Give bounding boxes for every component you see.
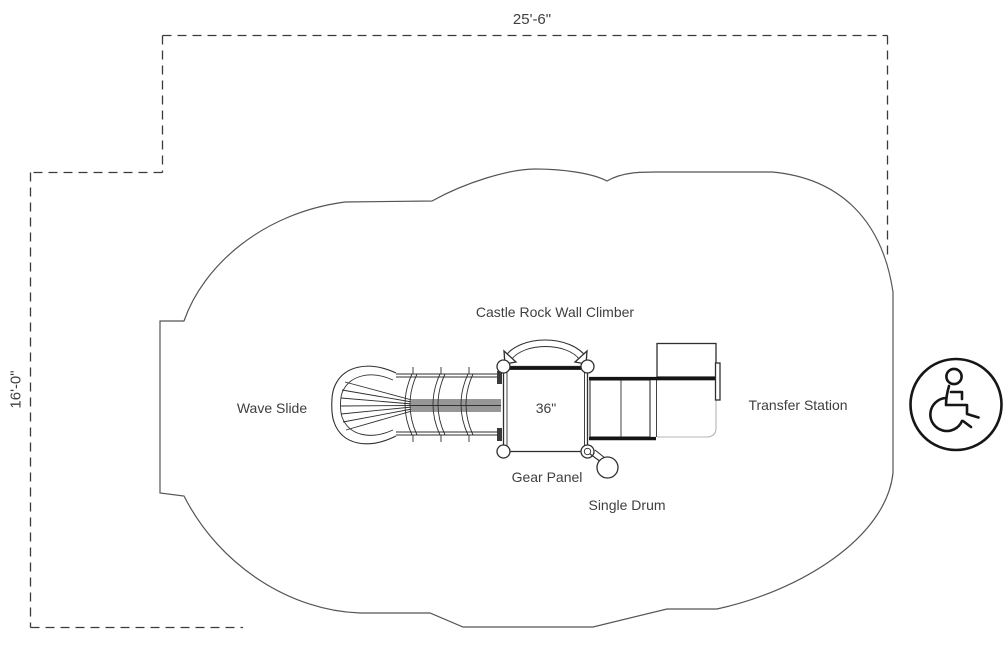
single-drum-label: Single Drum [557,497,697,514]
transfer-upper-box [657,344,716,378]
wheelchair-accessible-icon [911,359,1002,450]
plan-linework [0,0,1008,662]
height-dimension-label: 16'-0" [8,360,25,420]
transfer-handhold [716,363,721,400]
deck-size-label: 36" [516,400,576,417]
climber-label: Castle Rock Wall Climber [455,304,655,321]
transfer-station-label: Transfer Station [718,397,878,414]
gear-panel-label: Gear Panel [487,469,607,486]
wave-slide-label: Wave Slide [212,400,332,417]
width-dimension-label: 25'-6" [492,11,572,28]
slide-attach-cap-bottom [497,428,502,441]
playground-plan-drawing: 25'-6" 16'-0" Castle Rock Wall Climber W… [0,0,1008,662]
